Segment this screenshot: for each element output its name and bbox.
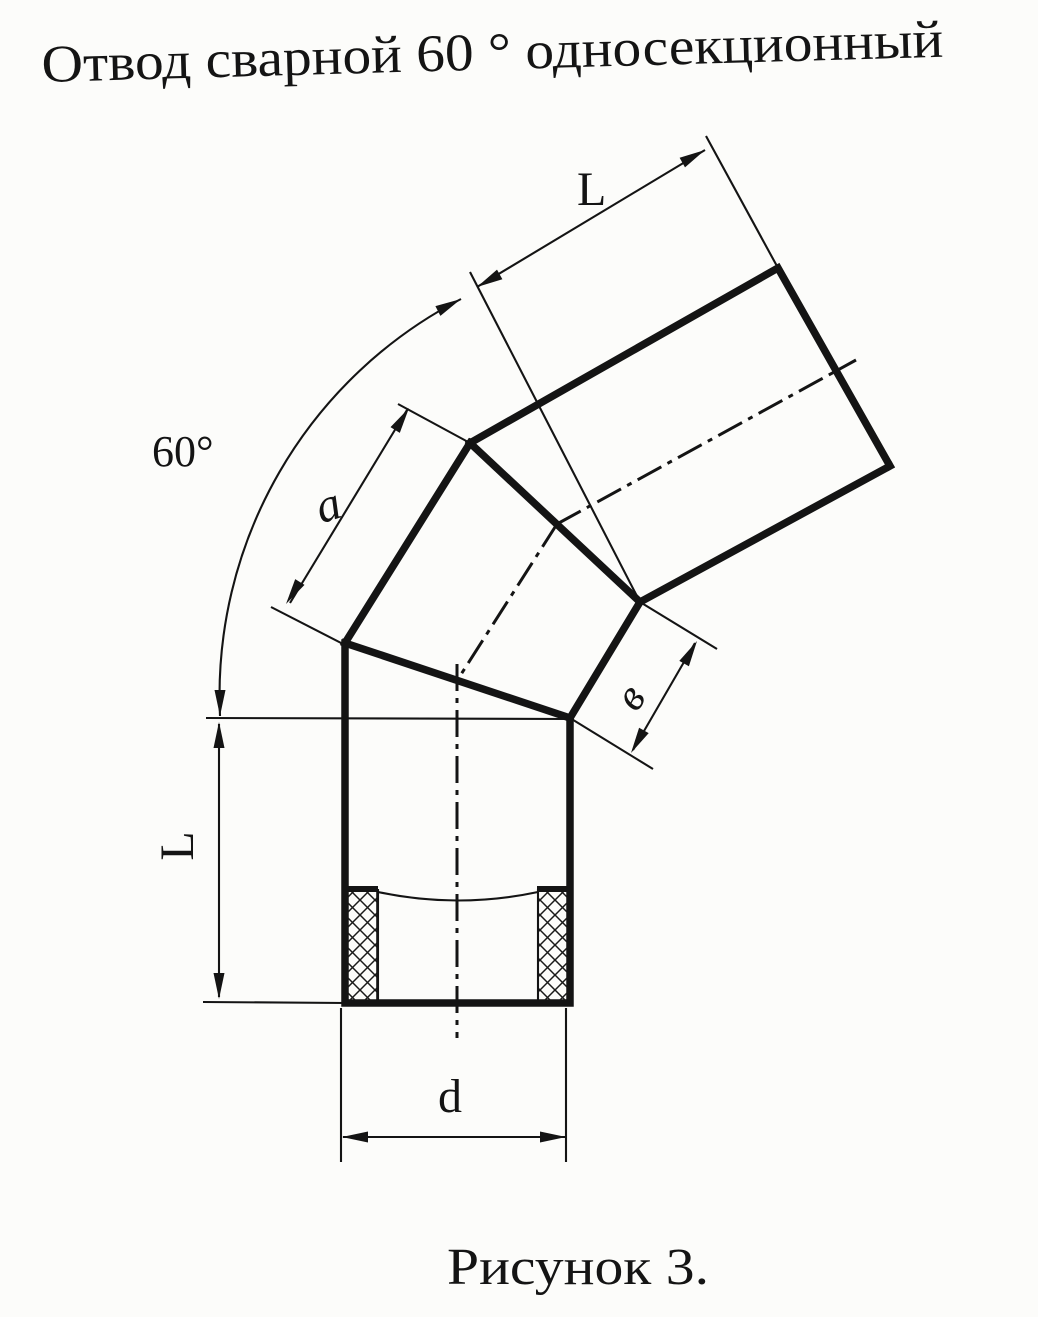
arrow-d-right bbox=[540, 1132, 566, 1143]
arrow-v-lower bbox=[631, 728, 649, 753]
ext-a-top bbox=[398, 404, 470, 443]
middle-section-edges bbox=[345, 443, 640, 718]
label-angle: 60° bbox=[152, 427, 214, 476]
label-weld-edge: в bbox=[604, 675, 655, 719]
label-diameter: d bbox=[438, 1070, 462, 1123]
dimension-lines bbox=[219, 150, 705, 1137]
label-upper-length: L bbox=[577, 163, 606, 216]
arrow-upper-L-left bbox=[477, 270, 502, 287]
ext-weld-level bbox=[206, 718, 574, 719]
arrow-a-top bbox=[391, 408, 410, 433]
weld-seam-upper bbox=[470, 443, 640, 602]
ext-upper-L-right bbox=[706, 136, 778, 268]
scanned-page: Отвод сварной 60 ° односекционный bbox=[0, 0, 1038, 1317]
page-title: Отвод сварной 60 ° односекционный bbox=[41, 11, 944, 94]
weld-seam-lower bbox=[345, 643, 570, 718]
centerline-upper-pipe bbox=[557, 360, 856, 524]
arrow-lower-L-bottom bbox=[214, 973, 225, 999]
arrow-arc-top bbox=[435, 299, 461, 316]
wall-hatch-left bbox=[347, 891, 377, 1001]
figure-caption: Рисунок 3. bbox=[447, 1239, 709, 1296]
ext-upper-L-left bbox=[470, 272, 640, 602]
arrow-upper-L-right bbox=[680, 150, 705, 167]
ext-a-bottom bbox=[271, 607, 345, 645]
technical-drawing: Отвод сварной 60 ° односекционный bbox=[0, 0, 1038, 1317]
label-lower-length: L bbox=[151, 831, 204, 860]
arrow-v-upper bbox=[679, 641, 697, 666]
ext-v-upper bbox=[640, 602, 717, 649]
dimension-labels: L 60° a в L d bbox=[151, 163, 655, 1123]
ext-v-lower bbox=[570, 718, 653, 769]
arrow-lower-L-top bbox=[214, 722, 225, 748]
elbow-outline bbox=[345, 268, 890, 1003]
ext-pipe-bottom bbox=[203, 1002, 346, 1003]
upper-pipe-outline bbox=[470, 268, 890, 602]
arrow-d-left bbox=[342, 1132, 368, 1143]
wall-hatch-right bbox=[538, 891, 568, 1001]
label-section-length: a bbox=[308, 476, 347, 534]
arrow-arc-bottom bbox=[215, 690, 226, 716]
centerline-middle-section bbox=[460, 524, 557, 676]
